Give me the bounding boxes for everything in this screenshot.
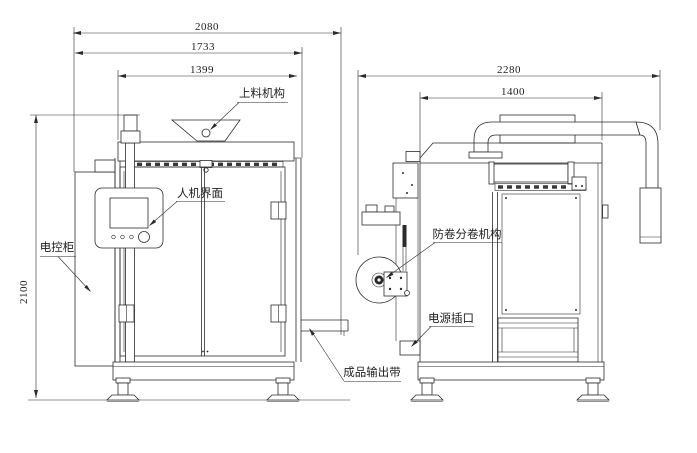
arm-cylinder [385, 206, 394, 212]
lower-compartment [498, 318, 578, 362]
roof-protrusion [406, 152, 420, 162]
dim-overall-depth: 2280 [358, 64, 660, 78]
cabinet-step [95, 160, 115, 172]
dim-body-depth: 1400 [420, 86, 602, 100]
duct-elbow [636, 122, 658, 188]
feed-inlet [202, 129, 210, 137]
top-beam [118, 142, 294, 161]
door-dot [202, 351, 204, 353]
output-belt-label: 成品输出带 [309, 328, 401, 382]
door-dot [207, 351, 209, 353]
side-roof [406, 143, 602, 163]
rail-bracket [572, 177, 586, 190]
side-panel [502, 194, 580, 314]
power-socket-label: 电源插口 [411, 311, 474, 347]
leveling-foot-left [107, 378, 139, 402]
output-belt-label-text: 成品输出带 [343, 365, 401, 379]
duct-nozzle [640, 188, 661, 243]
duct-flange [469, 152, 502, 158]
dim-text: 2080 [195, 21, 219, 33]
dim-height: 2100 [18, 115, 38, 398]
roll-bracket-plate [384, 272, 407, 296]
dim-body-width: 1399 [118, 64, 297, 78]
side-base [418, 362, 604, 380]
machine-base [113, 362, 294, 380]
roll-knob [405, 291, 410, 296]
mast-shaft [126, 143, 135, 362]
side-handle [603, 205, 609, 218]
hmi-screen [110, 198, 148, 228]
unwind-arm [362, 212, 400, 225]
dim-text: 2280 [497, 64, 521, 76]
front-dimensions: 2080 1733 1399 2100 [18, 21, 341, 398]
roller [493, 164, 568, 182]
dim-text: 1733 [191, 41, 215, 53]
dim-overall-width: 2080 [73, 21, 341, 35]
hmi-panel [95, 188, 163, 248]
feeder-label-text: 上料机构 [239, 86, 285, 100]
anti-roll-label-text: 防卷分卷机构 [433, 227, 502, 241]
hmi-knob [139, 232, 150, 243]
arm-cylinder [366, 205, 377, 212]
side-foot-right [577, 378, 609, 402]
dim-text: 2100 [18, 280, 30, 304]
rail-clamp [200, 161, 212, 168]
mast-cap-flange [121, 131, 140, 143]
power-socket [400, 341, 420, 355]
mast-cap-top [124, 115, 137, 131]
dim-frame-width: 1733 [75, 41, 302, 55]
side-view [356, 115, 661, 402]
unwinder-assembly [356, 163, 418, 341]
hmi-label-text: 人机界面 [177, 186, 223, 200]
dim-text: 1399 [190, 64, 214, 76]
guide-rod [403, 225, 407, 247]
tower-box [393, 163, 418, 198]
power-socket-label-text: 电源插口 [428, 311, 474, 325]
cabinet-label-text: 电控柜 [40, 240, 75, 254]
engineering-drawing: 2080 1733 1399 2100 上料机构 人机界面 [0, 0, 697, 453]
dim-text: 1400 [501, 86, 525, 98]
leveling-foot-right [267, 378, 299, 402]
machine-drawing-canvas: 2080 1733 1399 2100 上料机构 人机界面 [0, 0, 697, 453]
roller-assembly [489, 162, 586, 191]
side-foot-left [411, 378, 443, 402]
